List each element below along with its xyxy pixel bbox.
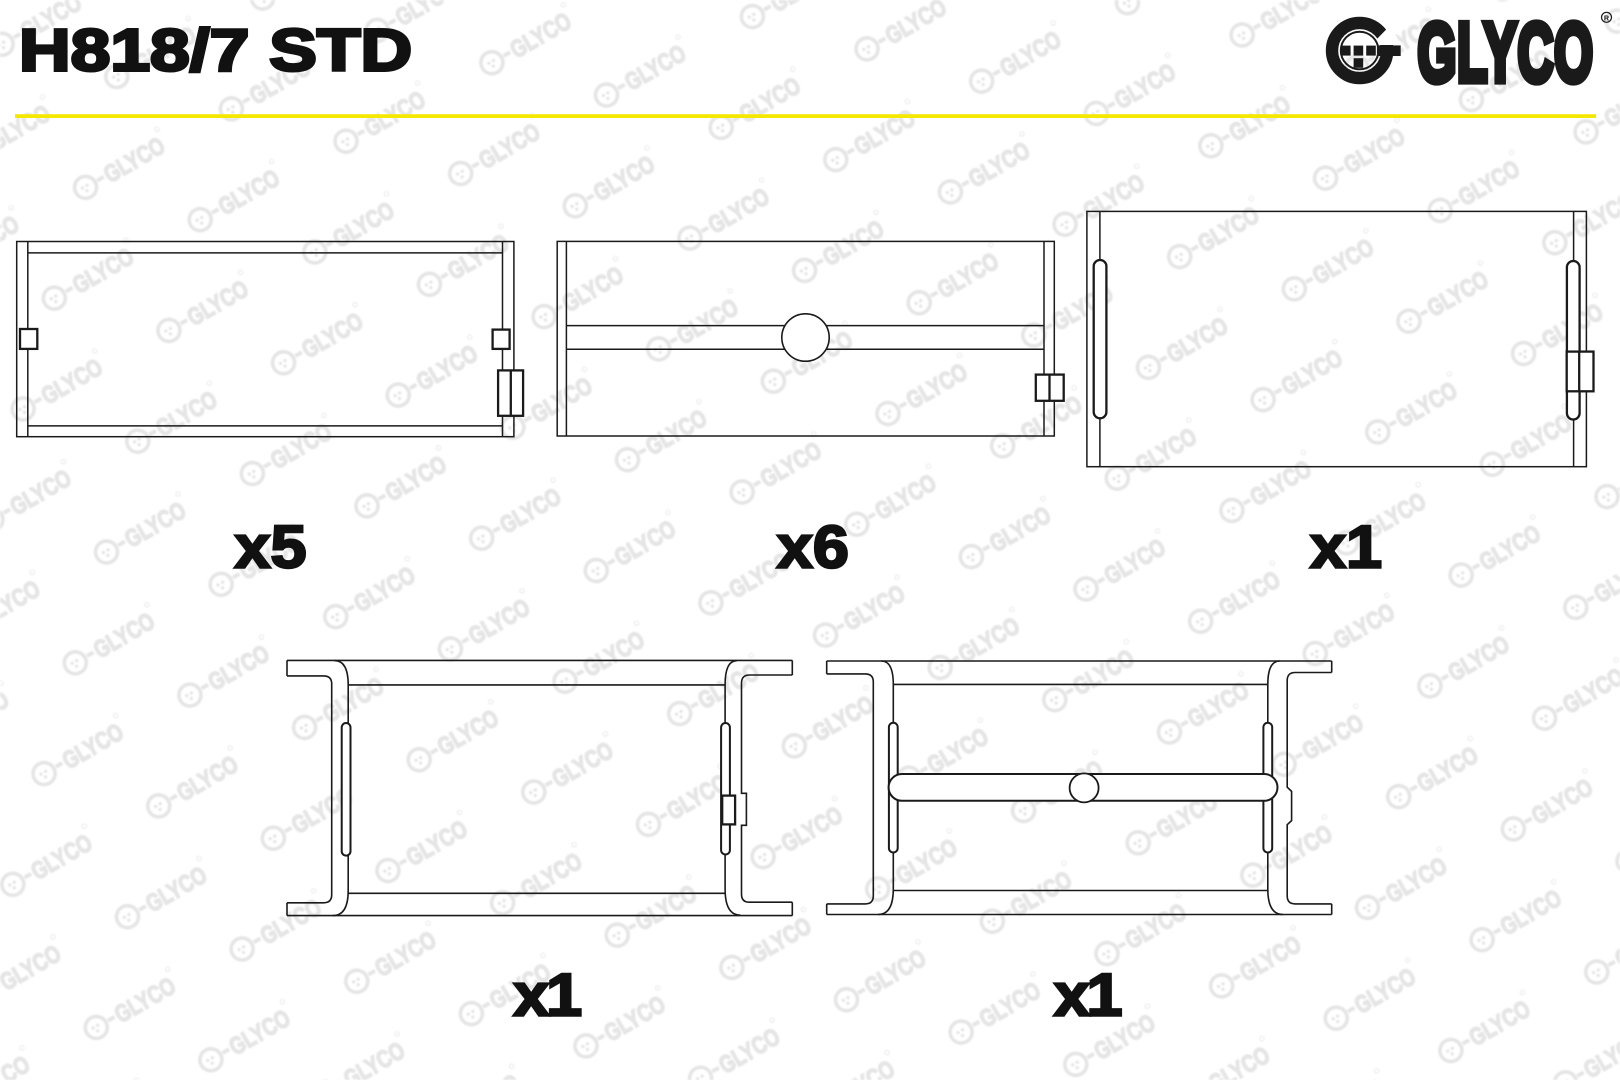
svg-text:x1: x1 (513, 962, 580, 1029)
svg-text:x6: x6 (777, 514, 849, 581)
svg-text:x5: x5 (235, 514, 307, 581)
svg-text:x1: x1 (1310, 514, 1382, 581)
svg-text:GLYCO: GLYCO (1418, 6, 1594, 99)
svg-text:R: R (1604, 13, 1610, 22)
svg-text:x1: x1 (1054, 962, 1121, 1029)
svg-text:H818/7 STD: H818/7 STD (19, 17, 412, 83)
